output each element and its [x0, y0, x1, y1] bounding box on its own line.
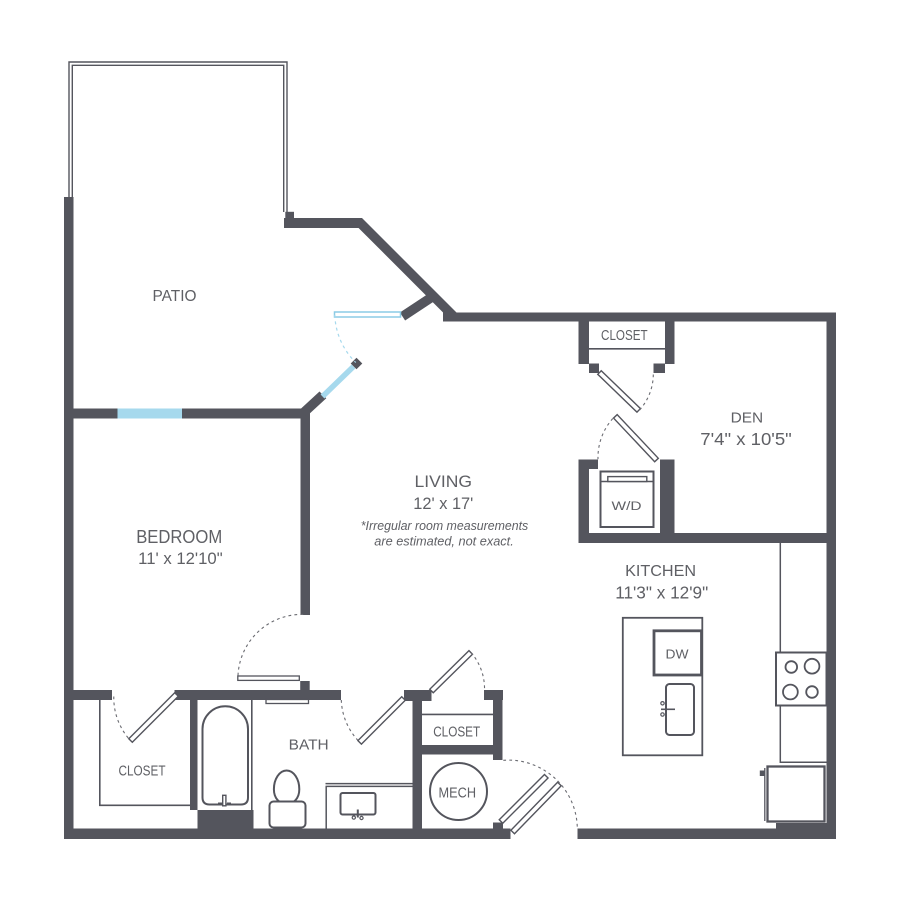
svg-text:CLOSET: CLOSET	[119, 763, 166, 779]
svg-text:12' x 17': 12' x 17'	[413, 494, 473, 513]
svg-text:*Irregular room measurements: *Irregular room measurements	[361, 518, 529, 533]
svg-text:7'4" x 10'5": 7'4" x 10'5"	[700, 429, 792, 449]
svg-text:DEN: DEN	[731, 410, 764, 427]
svg-text:BATH: BATH	[289, 737, 329, 754]
svg-text:CLOSET: CLOSET	[601, 328, 648, 344]
svg-text:11'3" x 12'9": 11'3" x 12'9"	[615, 583, 708, 603]
svg-text:are estimated, not exact.: are estimated, not exact.	[374, 534, 514, 549]
svg-text:LIVING: LIVING	[415, 472, 473, 491]
svg-text:CLOSET: CLOSET	[433, 724, 480, 740]
svg-text:PATIO: PATIO	[153, 288, 197, 305]
svg-text:11' x 12'10": 11' x 12'10"	[138, 550, 223, 568]
svg-text:BEDROOM: BEDROOM	[136, 527, 222, 547]
svg-text:MECH: MECH	[439, 785, 477, 801]
svg-text:KITCHEN: KITCHEN	[625, 563, 696, 580]
svg-text:DW: DW	[666, 647, 690, 662]
svg-text:W/D: W/D	[612, 499, 642, 513]
